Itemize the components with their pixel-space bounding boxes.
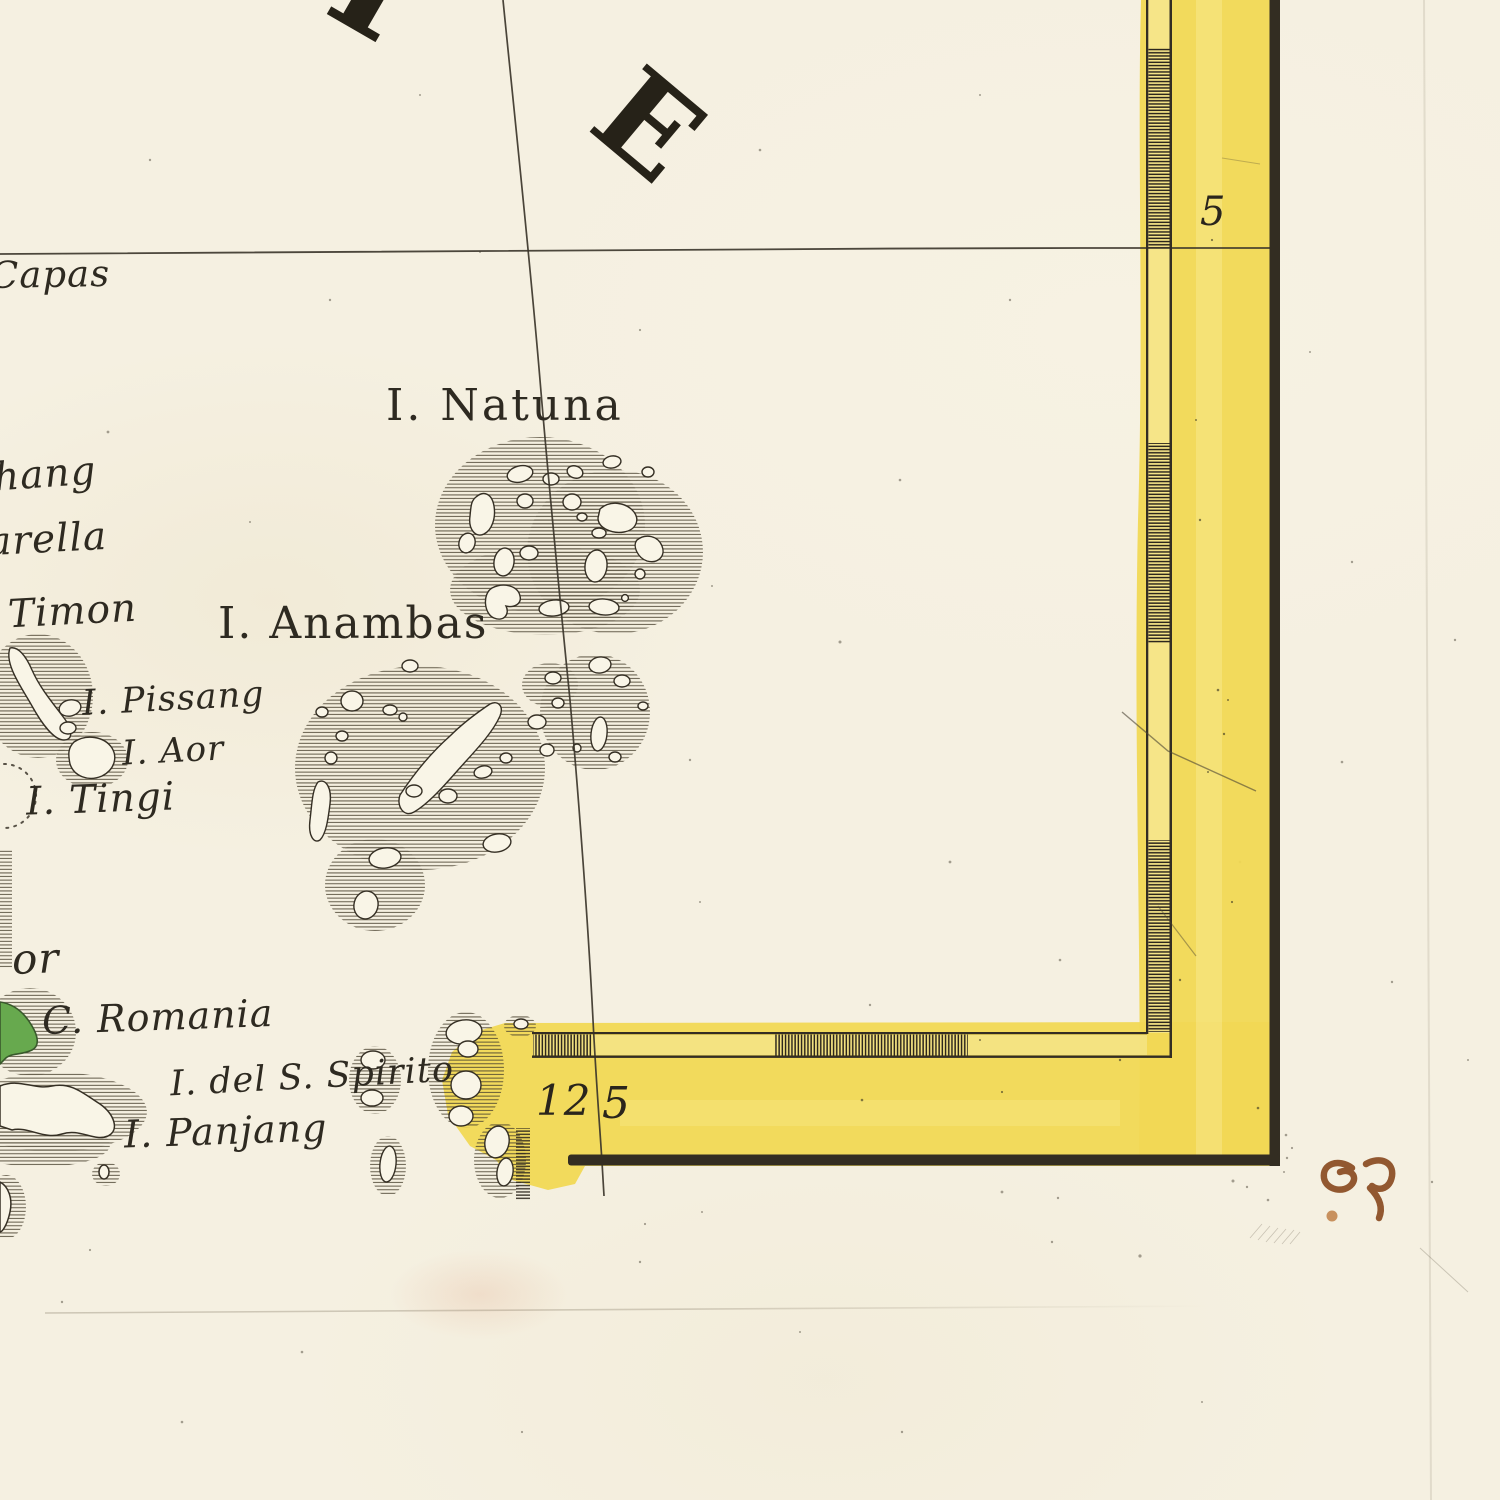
graticule-longitude-5: 5 bbox=[602, 1082, 631, 1126]
label-natuna: I. Natuna bbox=[386, 384, 624, 428]
label-johor-fragment: or bbox=[11, 937, 60, 981]
label-varella-fragment: arella bbox=[0, 517, 108, 562]
graticule-longitude-12: 12 bbox=[536, 1080, 591, 1122]
label-timon: Timon bbox=[7, 589, 138, 635]
label-tingi: I. Tingi bbox=[25, 777, 176, 821]
manuscript-ink-squiggle bbox=[1324, 1160, 1392, 1218]
fold-crease-line bbox=[1424, 0, 1431, 1500]
label-aor: I. Aor bbox=[121, 731, 225, 770]
map-engraving-canvas bbox=[0, 0, 1500, 1500]
label-pahang-fragment: hang bbox=[0, 451, 98, 497]
parallel-line-5deg bbox=[0, 248, 1271, 254]
label-panjang: I. Panjang bbox=[123, 1108, 328, 1153]
label-anambas: I. Anambas bbox=[218, 602, 488, 646]
label-capas: Capas bbox=[0, 255, 110, 294]
plate-mark-line bbox=[45, 1306, 1210, 1313]
graticule-latitude-5: 5 bbox=[1200, 192, 1226, 232]
pencil-smudge bbox=[1250, 1224, 1300, 1244]
label-romania: C. Romania bbox=[41, 994, 274, 1040]
map-scan: I E Capas hang arella Timon I. Pissang I… bbox=[0, 0, 1500, 1500]
manuscript-ink-dot bbox=[1327, 1211, 1338, 1222]
label-pissang: I. Pissang bbox=[81, 677, 265, 722]
